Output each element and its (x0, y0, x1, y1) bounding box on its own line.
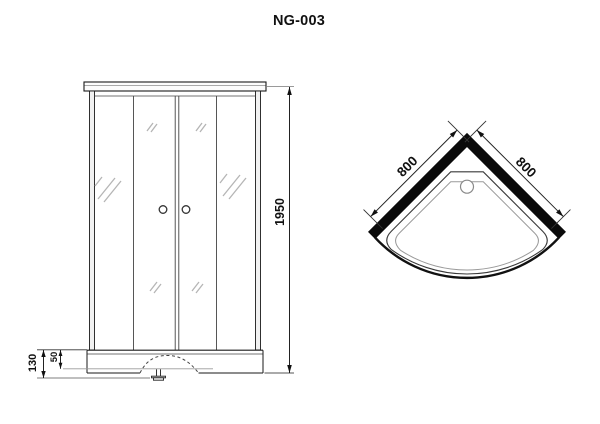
width-dimension-label-left: 800 (394, 153, 421, 180)
tray-depth-dimension: 50 (49, 350, 213, 369)
front-view: 1950 130 50 (20, 75, 300, 390)
tray-dome-hidden-line (140, 356, 199, 374)
door-handle-left (159, 206, 167, 214)
height-dimension: 1950 (265, 87, 295, 374)
frame-post-left (90, 91, 95, 350)
door-handle-right (182, 206, 190, 214)
tray-foot (152, 369, 166, 380)
top-view: 800 800 (345, 95, 590, 295)
height-dimension-label: 1950 (273, 198, 287, 226)
glass-panel-dividers (134, 96, 217, 350)
model-title: NG-003 (244, 13, 354, 29)
width-dimension-label-right: 800 (513, 154, 540, 181)
glass-shine-marks (95, 123, 246, 293)
tray-height-dimension-label: 130 (27, 354, 39, 372)
tray-depth-dimension-label: 50 (49, 352, 60, 363)
shower-tray-front (87, 350, 263, 373)
technical-drawing-canvas: NG-003 (0, 0, 600, 424)
frame-post-right (256, 91, 261, 350)
top-cap (84, 82, 266, 91)
